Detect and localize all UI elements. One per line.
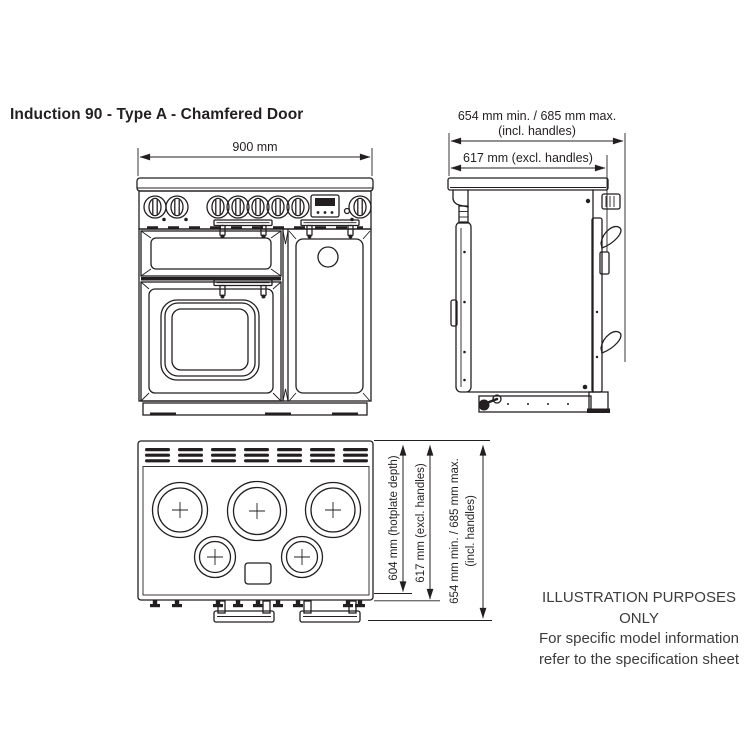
plinth: [143, 403, 367, 416]
rear-vent-slats: [145, 448, 368, 462]
side-knob-icon: [602, 194, 620, 209]
depth-excl-handles-dimension: 617 mm (excl. handles): [374, 446, 440, 601]
top-view: 604 mm (hotplate depth) 617 mm (excl. ha…: [138, 441, 492, 623]
dimension-label-617mm-side: 617 mm (excl. handles): [463, 151, 593, 165]
hob-control-area: [245, 563, 271, 584]
dimension-label-617mm-top: 617 mm (excl. handles): [415, 463, 427, 583]
door-divider: [283, 229, 288, 401]
top-view-dimensions: 604 mm (hotplate depth) 617 mm (excl. ha…: [368, 441, 492, 621]
dimension-label-654mm-side: 654 mm min. / 685 mm max.: [458, 109, 616, 123]
dimension-label-604mm: 604 mm (hotplate depth): [388, 455, 400, 580]
right-door: [289, 231, 370, 401]
grill-door: [141, 231, 281, 281]
oven-door: [141, 282, 281, 401]
dimension-label-900mm: 900 mm: [232, 140, 277, 154]
page-title: Induction 90 - Type A - Chamfered Door: [10, 106, 303, 124]
side-handle-bottom-icon: [601, 331, 621, 353]
side-cooker-drawing: [448, 178, 621, 413]
disclaimer-line-1: ILLUSTRATION PURPOSES ONLY: [528, 588, 750, 629]
top-knob-ticks: [150, 600, 365, 607]
caster-wheel-icon: [479, 395, 502, 411]
front-width-dimension: 900 mm: [138, 140, 372, 176]
side-depth-excl-dimension: 617 mm (excl. handles): [451, 151, 607, 252]
side-view: 654 mm min. / 685 mm max. (incl. handles…: [448, 109, 625, 413]
side-depth-incl-dimension: 654 mm min. / 685 mm max. (incl. handles…: [449, 109, 625, 362]
side-handle-top-icon: [601, 226, 621, 248]
front-cooker-drawing: [137, 178, 373, 416]
front-view: 900 mm: [137, 140, 373, 416]
oven-window: [161, 300, 259, 380]
side-base: [479, 385, 611, 413]
rear-vent: [451, 190, 471, 392]
hotplate-depth-dimension: 604 mm (hotplate depth): [374, 446, 412, 594]
control-display: [311, 195, 339, 217]
disclaimer-note: ILLUSTRATION PURPOSES ONLY For specific …: [528, 588, 750, 670]
disclaimer-line-3: refer to the specification sheet: [528, 650, 750, 671]
door-emblem-icon: [318, 247, 338, 267]
spec-sheet-page: 900 mm: [0, 0, 750, 750]
dimension-label-incl-handles-side: (incl. handles): [498, 124, 576, 138]
dimension-label-incl-handles-top: (incl. handles): [465, 495, 477, 567]
dimension-label-654mm-top: 654 mm min. / 685 mm max.: [449, 458, 461, 604]
top-cooker-drawing: [138, 441, 373, 622]
disclaimer-line-2: For specific model information: [528, 629, 750, 650]
